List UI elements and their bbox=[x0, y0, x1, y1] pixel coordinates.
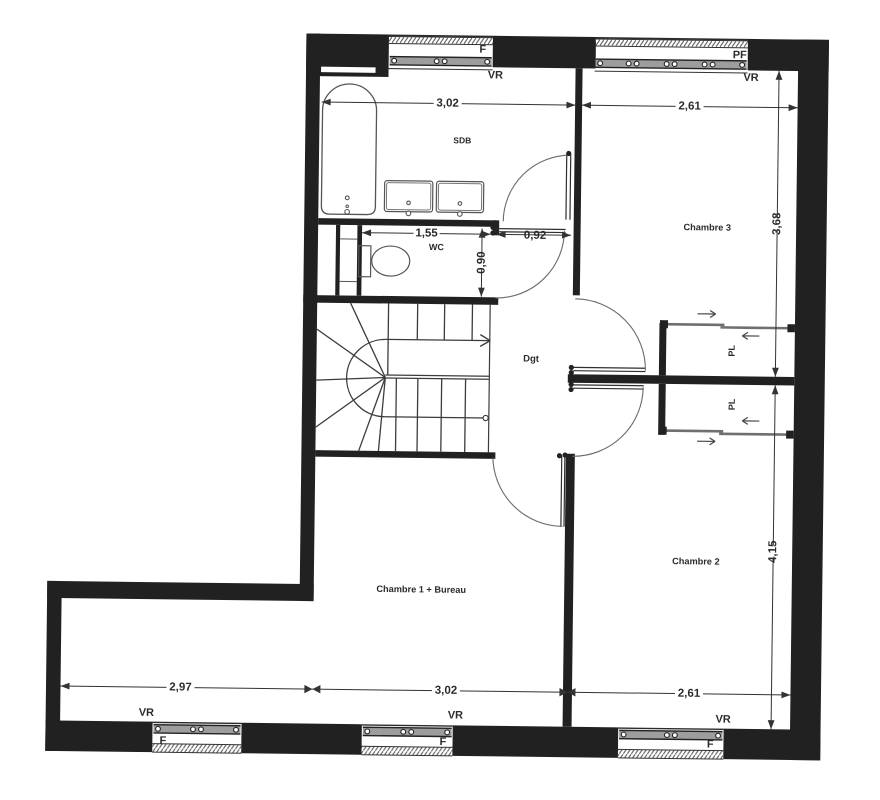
svg-text:2,61: 2,61 bbox=[678, 100, 701, 112]
svg-text:3,02: 3,02 bbox=[436, 97, 459, 109]
svg-text:2,61: 2,61 bbox=[678, 688, 701, 700]
svg-text:3,68: 3,68 bbox=[771, 212, 783, 235]
svg-text:VR: VR bbox=[488, 69, 503, 81]
svg-text:VR: VR bbox=[743, 72, 758, 84]
svg-text:F: F bbox=[439, 736, 446, 748]
svg-text:PL: PL bbox=[727, 398, 737, 410]
svg-text:Dgt: Dgt bbox=[523, 354, 540, 365]
svg-text:VR: VR bbox=[448, 709, 463, 721]
svg-text:3,02: 3,02 bbox=[435, 685, 458, 697]
svg-text:WC: WC bbox=[429, 242, 445, 252]
svg-text:4,15: 4,15 bbox=[767, 540, 779, 563]
svg-text:PL: PL bbox=[727, 345, 737, 357]
svg-text:SDB: SDB bbox=[453, 135, 471, 145]
svg-text:1,55: 1,55 bbox=[415, 227, 438, 239]
svg-text:F: F bbox=[160, 735, 167, 747]
svg-text:PF: PF bbox=[733, 49, 747, 61]
svg-text:2,97: 2,97 bbox=[169, 681, 192, 693]
svg-text:VR: VR bbox=[139, 707, 154, 719]
svg-text:0,90: 0,90 bbox=[476, 251, 488, 274]
svg-text:Chambre 1 + Bureau: Chambre 1 + Bureau bbox=[376, 584, 466, 595]
svg-text:Chambre 3: Chambre 3 bbox=[683, 222, 731, 233]
svg-text:Chambre 2: Chambre 2 bbox=[672, 556, 720, 567]
svg-text:VR: VR bbox=[715, 714, 730, 726]
svg-text:F: F bbox=[479, 44, 486, 56]
svg-text:F: F bbox=[707, 739, 714, 751]
svg-text:0,92: 0,92 bbox=[524, 230, 547, 242]
